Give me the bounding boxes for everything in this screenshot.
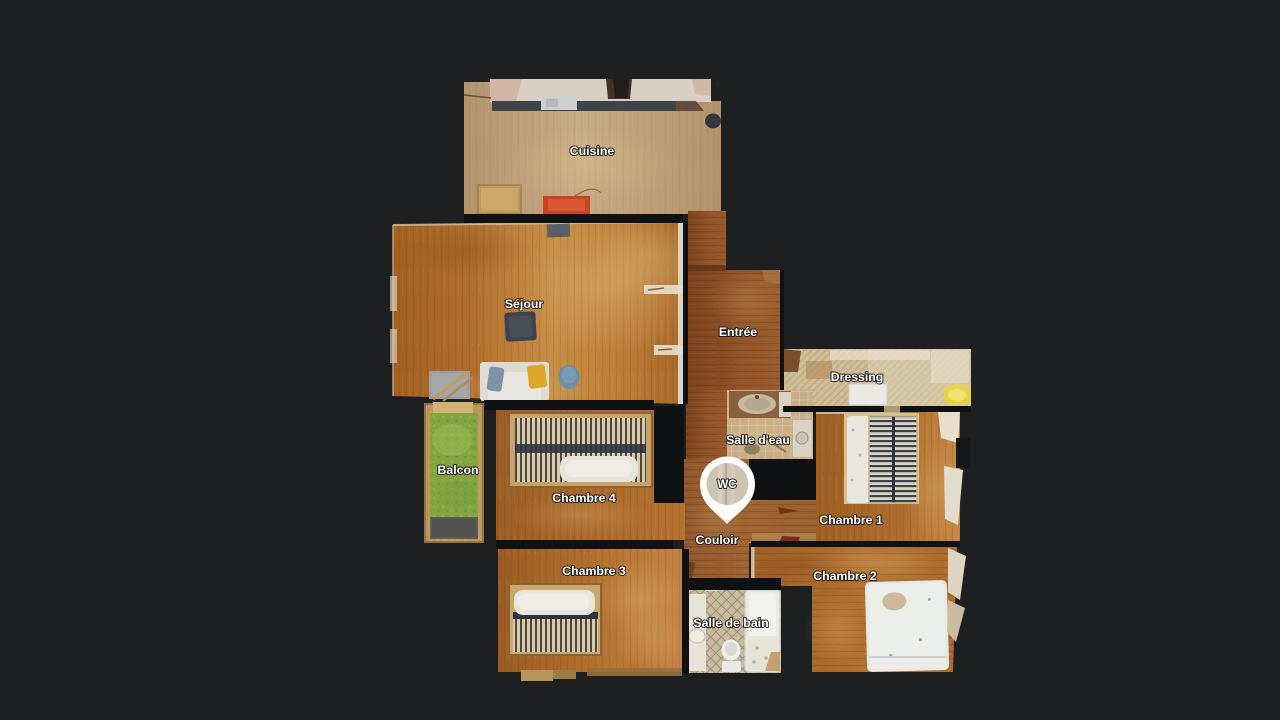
svg-text:Entrée: Entrée (719, 325, 757, 339)
svg-text:Chambre 3: Chambre 3 (562, 564, 626, 578)
svg-text:Balcon: Balcon (438, 463, 479, 477)
svg-text:Chambre 4: Chambre 4 (552, 491, 616, 505)
svg-text:Cuisine: Cuisine (570, 144, 615, 158)
svg-text:WC: WC (717, 479, 736, 491)
svg-text:Dressing: Dressing (831, 370, 884, 384)
svg-text:Salle d'eau: Salle d'eau (726, 433, 790, 447)
svg-text:Salle de bain: Salle de bain (693, 616, 768, 630)
svg-text:Couloir: Couloir (695, 533, 738, 547)
svg-text:Chambre 2: Chambre 2 (813, 569, 877, 583)
svg-text:Chambre 1: Chambre 1 (819, 513, 883, 527)
svg-text:Séjour: Séjour (505, 297, 543, 311)
